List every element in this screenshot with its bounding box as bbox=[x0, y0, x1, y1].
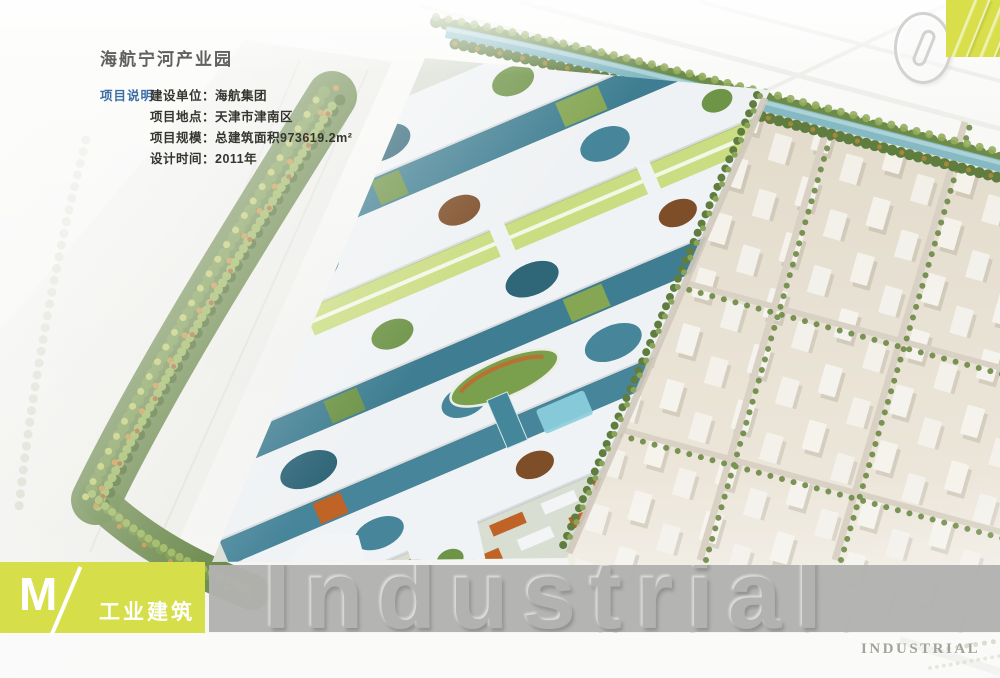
portfolio-page: 海航宁河产业园 项目说明 建设单位：海航集团 项目地点：天津市津南区 项目规模：… bbox=[0, 0, 1000, 678]
page-title: 海航宁河产业园 bbox=[100, 45, 233, 70]
zero-counter bbox=[910, 28, 937, 68]
corner-number-zero bbox=[894, 12, 952, 84]
project-info-label: 项目说明 bbox=[100, 85, 154, 104]
corner-number-one-box bbox=[946, 0, 1000, 57]
embossed-banner: Industrial bbox=[209, 565, 1000, 632]
project-info-line: 项目规模：总建筑面积973619.2m² bbox=[150, 127, 352, 146]
project-info-line: 建设单位：海航集团 bbox=[150, 85, 267, 104]
chapter-category: 工业建筑 bbox=[99, 596, 195, 626]
chapter-letter: M bbox=[19, 571, 57, 617]
project-info-line: 项目地点：天津市津南区 bbox=[150, 106, 293, 125]
chapter-index-block: M 工业建筑 bbox=[0, 562, 205, 633]
banner-word: Industrial bbox=[264, 565, 836, 632]
project-info-line: 设计时间：2011年 bbox=[150, 148, 257, 167]
industrial-watermark: INDUSTRIAL bbox=[861, 641, 980, 658]
